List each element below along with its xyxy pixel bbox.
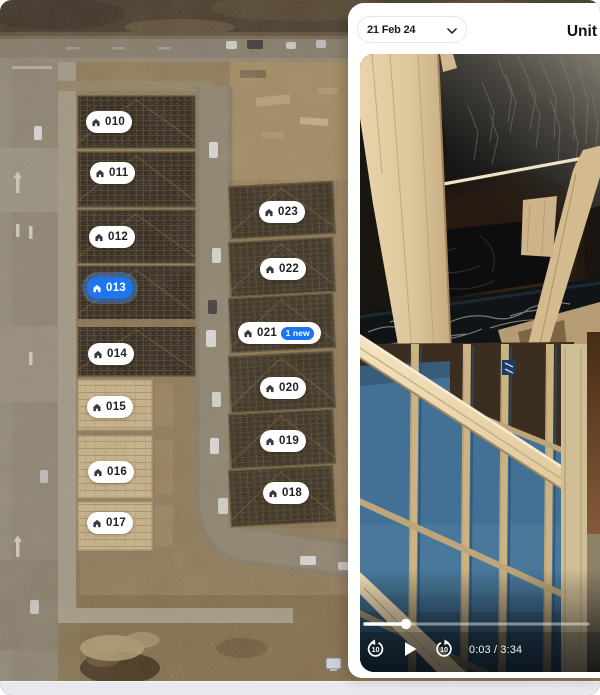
svg-text:10: 10 (440, 645, 448, 654)
svg-text:0:03 / 3:34: 0:03 / 3:34 (469, 644, 522, 656)
svg-text:10: 10 (371, 645, 379, 654)
